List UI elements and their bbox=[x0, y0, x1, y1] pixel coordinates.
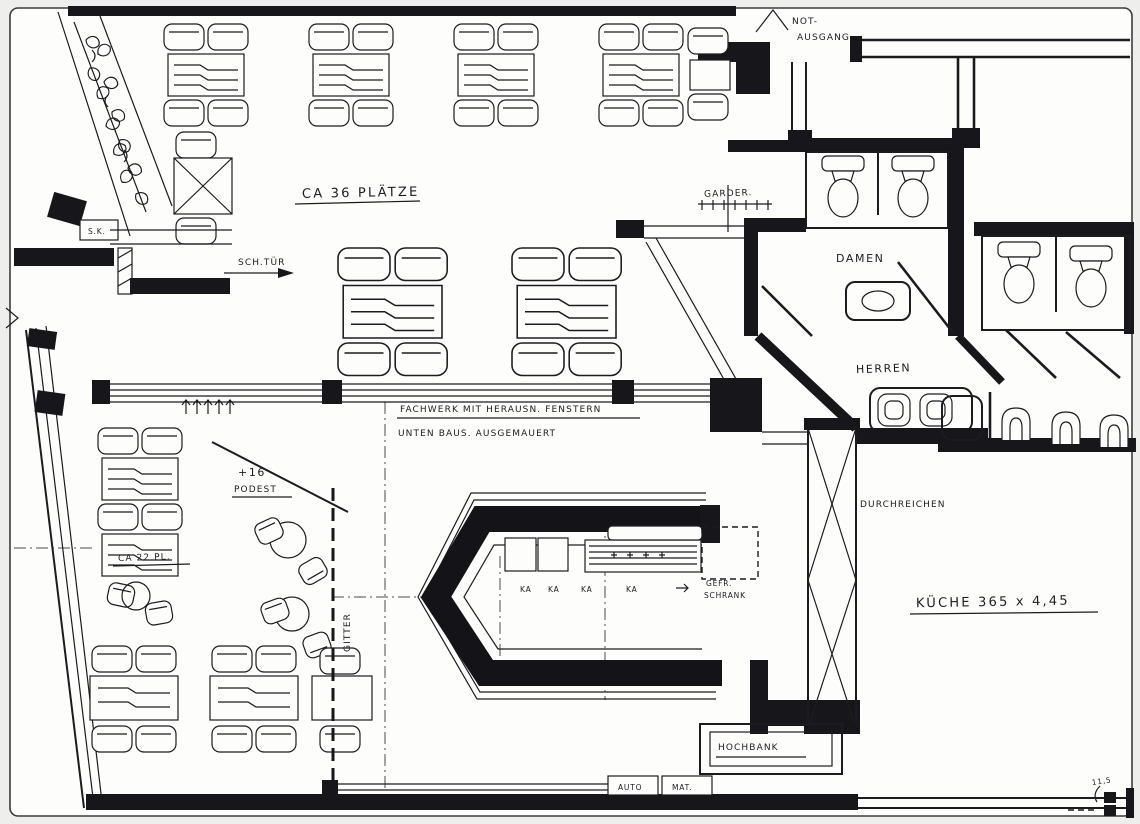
seating-36-label: CA 36 PLÄTZE bbox=[302, 184, 420, 202]
sink-icon bbox=[1002, 408, 1030, 440]
sliding-door-label: SCH.TÜR bbox=[238, 257, 286, 268]
seating-22-label: CA 22 PL. bbox=[118, 552, 171, 564]
emergency-exit-label-1: NOT- bbox=[792, 17, 818, 27]
sink-unit bbox=[505, 538, 568, 571]
sink-icon bbox=[1052, 412, 1080, 444]
gitter-label: GITTER bbox=[343, 613, 353, 652]
garderobe-label: GARDER. bbox=[704, 188, 753, 200]
scanned-floor-plan: NOT- AUSGANG bbox=[0, 0, 1140, 824]
podest-height-label: +16 bbox=[238, 466, 266, 479]
ka-label-4: KA bbox=[626, 585, 638, 594]
emergency-exit-label-2: AUSGANG bbox=[797, 33, 850, 43]
sink-icon bbox=[1100, 415, 1128, 447]
fachwerk-label: FACHWERK MIT HERAUSN. FENSTERN bbox=[400, 405, 602, 415]
automat-label-right: MAT. bbox=[672, 783, 692, 792]
ka-label-3: KA bbox=[581, 585, 593, 594]
hochbank-label: HOCHBANK bbox=[718, 743, 779, 753]
ausgemauert-label: UNTEN BAUS. AUSGEMAUERT bbox=[398, 429, 556, 439]
damen-label: DAMEN bbox=[836, 252, 884, 265]
ka-label-2: KA bbox=[548, 585, 560, 594]
automat-label-left: AUTO bbox=[618, 783, 642, 792]
podest-label: PODEST bbox=[234, 485, 277, 495]
pass-through-label: DURCHREICHEN bbox=[860, 500, 946, 510]
booth-group-bottom bbox=[90, 646, 372, 752]
ka-label-1: KA bbox=[520, 585, 532, 594]
sk-label: S.K. bbox=[88, 227, 106, 236]
herren-label: HERREN bbox=[856, 361, 912, 376]
freezer-label-2: SCHRANK bbox=[704, 591, 746, 600]
freezer-label-1: GEFR. bbox=[706, 579, 732, 588]
